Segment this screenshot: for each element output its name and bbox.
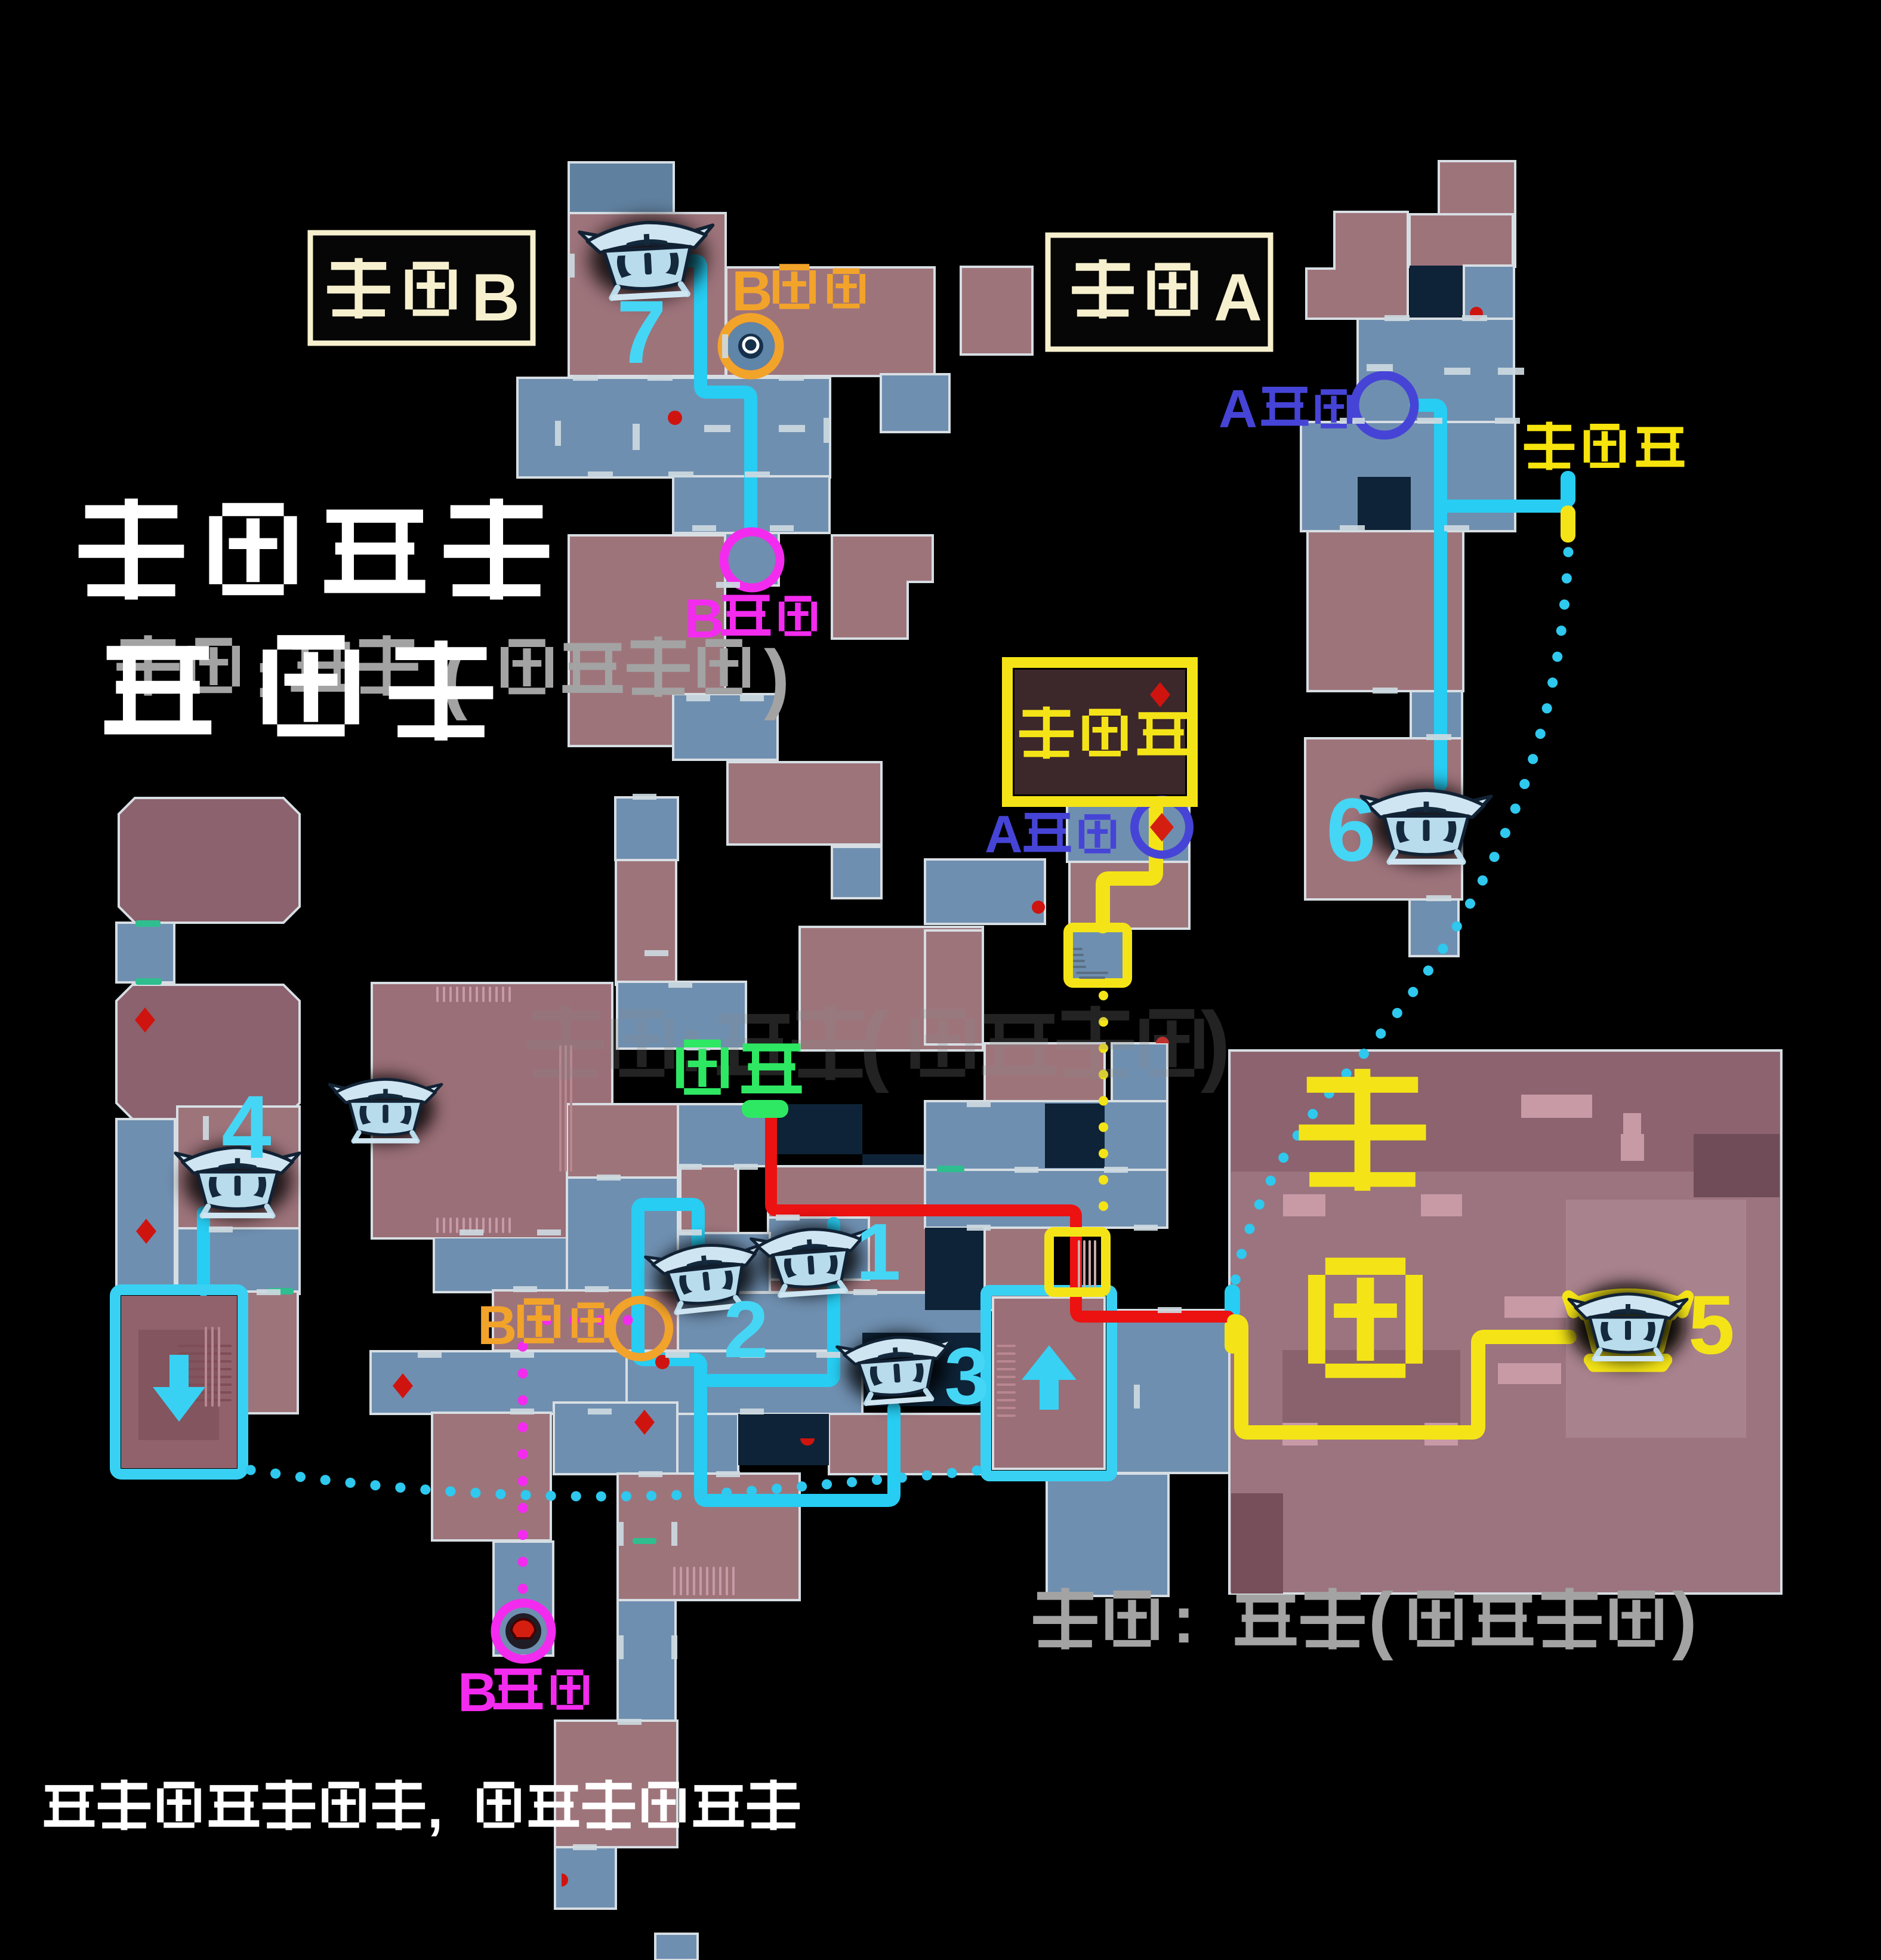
svg-text:3: 3 [944,1331,989,1421]
svg-text::: : [1173,1582,1195,1657]
svg-text:2: 2 [723,1284,768,1375]
svg-text:A: A [1219,380,1257,439]
svg-text:): ) [764,634,790,721]
svg-text:1: 1 [856,1207,901,1297]
svg-text:5: 5 [1688,1278,1735,1372]
svg-text:,: , [427,1777,443,1840]
svg-text:B: B [477,1295,517,1356]
svg-text:): ) [1201,993,1231,1093]
svg-text:7: 7 [616,282,666,382]
svg-text:B: B [732,260,773,323]
svg-text:6: 6 [1326,779,1376,880]
svg-text:): ) [1672,1578,1697,1661]
svg-text:(: ( [859,993,889,1093]
svg-text:4: 4 [221,1077,271,1177]
svg-text:(: ( [1368,1578,1393,1661]
svg-text:B: B [684,588,724,649]
svg-text:A: A [1214,260,1262,335]
svg-text:B: B [471,260,520,335]
svg-text:B: B [458,1662,497,1723]
svg-text:A: A [985,805,1023,864]
